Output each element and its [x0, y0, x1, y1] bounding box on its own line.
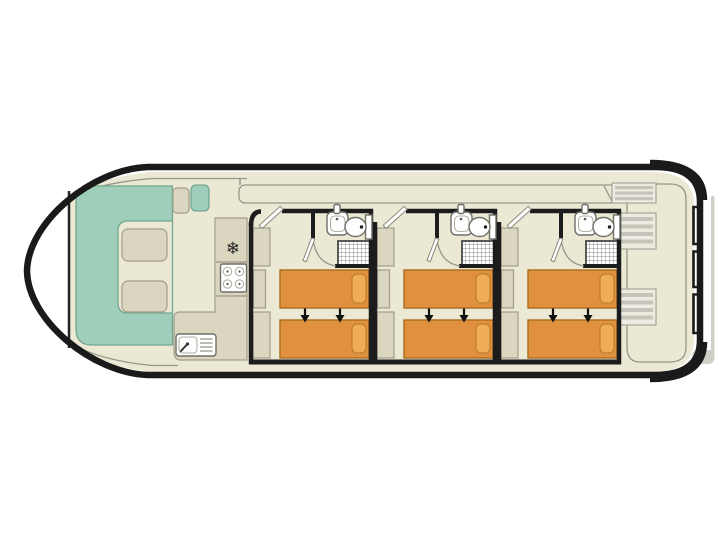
galley-sink — [176, 334, 216, 356]
twin-bed-upper — [404, 270, 493, 308]
shower-icon — [586, 241, 618, 266]
pillow — [352, 324, 366, 353]
twin-bed-upper — [528, 270, 617, 308]
wardrobe — [253, 228, 270, 266]
steps-upper — [618, 213, 656, 249]
pillow — [600, 324, 614, 353]
shower-icon — [462, 241, 494, 266]
side-unit — [254, 270, 266, 308]
twin-bed-lower — [528, 320, 617, 358]
side-unit — [378, 270, 390, 308]
steps-to-stern-deck — [612, 183, 656, 203]
pillow — [352, 274, 366, 303]
boat-floor-plan: ❄ — [0, 0, 720, 540]
dinette-table — [122, 229, 167, 261]
dinette-table — [122, 281, 167, 312]
twin-bed-lower — [404, 320, 493, 358]
steps-lower — [618, 289, 656, 325]
wardrobe — [253, 312, 270, 358]
pillow — [476, 274, 490, 303]
pillow — [476, 324, 490, 353]
side-seat — [173, 188, 189, 213]
hob-icon — [221, 264, 247, 292]
wardrobe — [377, 228, 394, 266]
side-seat — [191, 185, 209, 211]
wardrobe — [377, 312, 394, 358]
twin-bed-lower — [280, 320, 369, 358]
side-unit — [502, 270, 514, 308]
boat-floor-plan-page: ❄ — [0, 0, 720, 540]
wardrobe — [501, 228, 518, 266]
twin-bed-upper — [280, 270, 369, 308]
pillow — [600, 274, 614, 303]
fridge-icon: ❄ — [226, 239, 240, 259]
shower-icon — [338, 241, 370, 266]
wardrobe — [501, 312, 518, 358]
hull-shadow — [711, 196, 715, 360]
